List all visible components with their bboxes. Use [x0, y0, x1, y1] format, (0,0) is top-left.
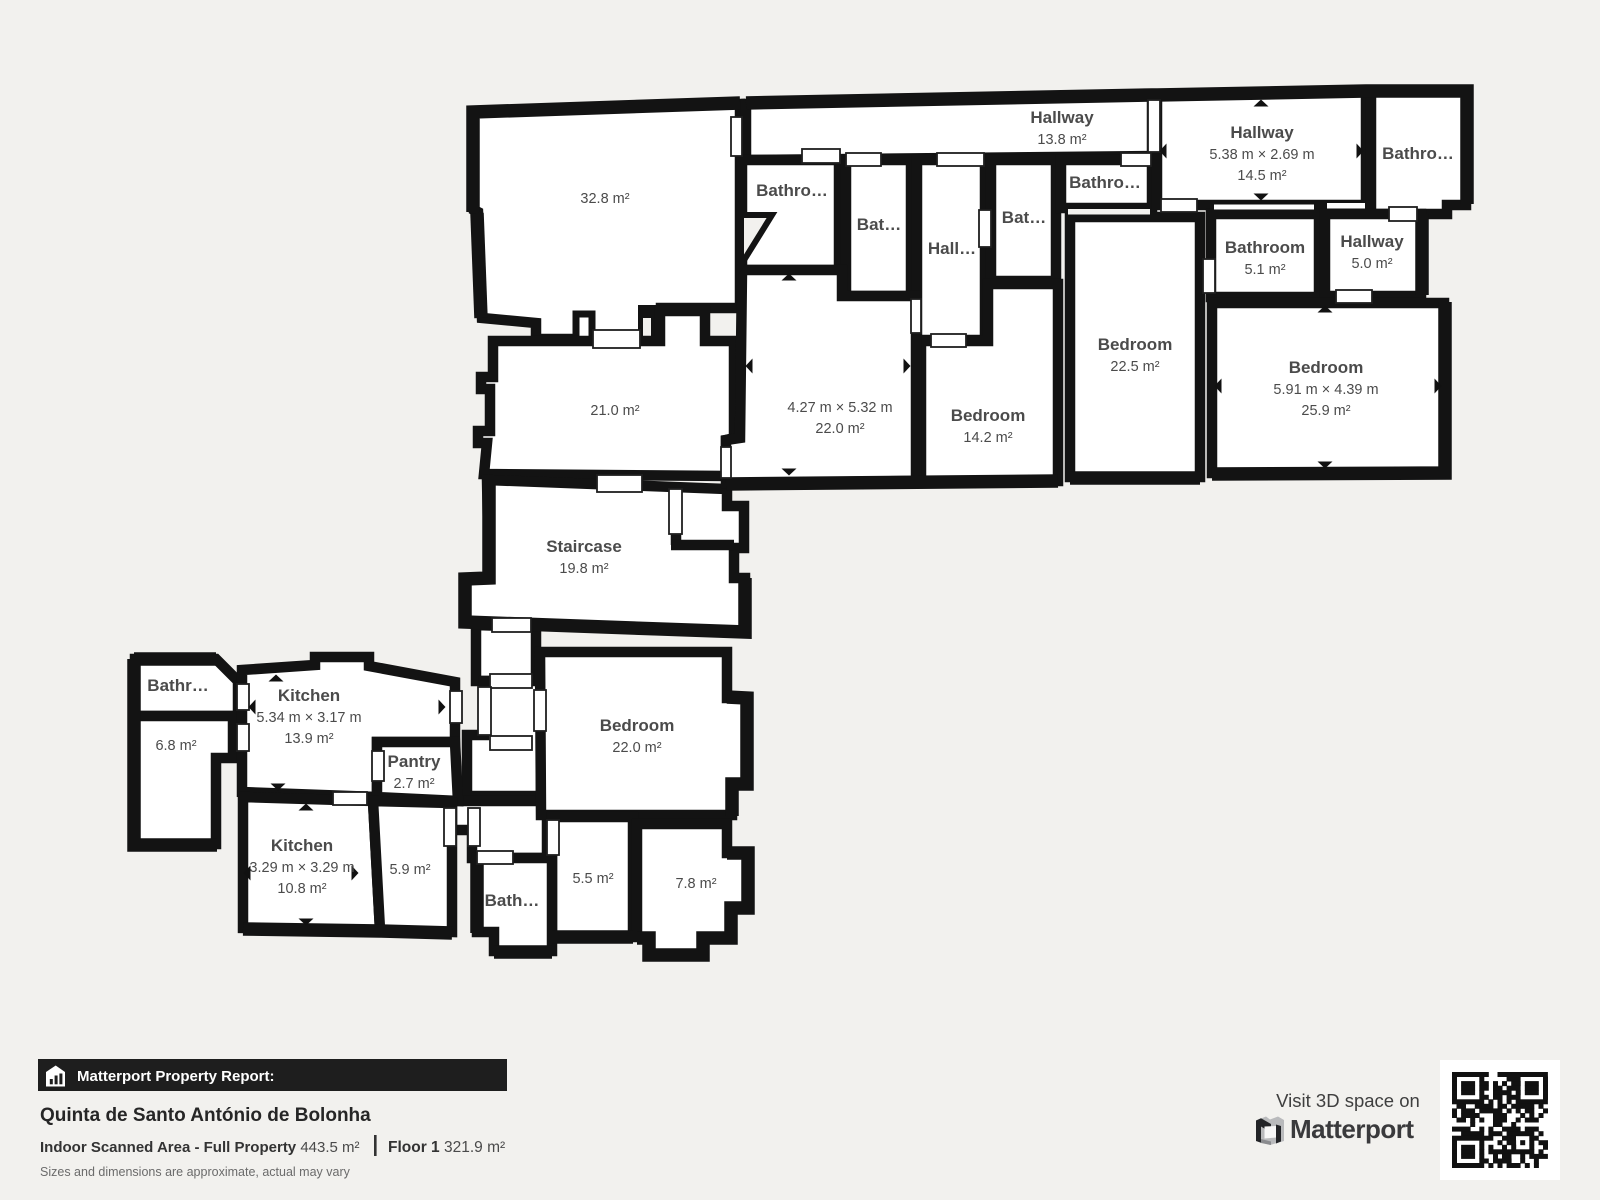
svg-text:Bedroom: Bedroom	[600, 716, 675, 735]
svg-text:5.5 m²: 5.5 m²	[572, 871, 613, 887]
svg-text:5.0 m²: 5.0 m²	[1351, 256, 1392, 272]
svg-text:13.8 m²: 13.8 m²	[1037, 132, 1086, 148]
svg-text:13.9 m²: 13.9 m²	[284, 731, 333, 747]
svg-text:22.5 m²: 22.5 m²	[1110, 359, 1159, 375]
svg-text:Hallway: Hallway	[1030, 108, 1094, 127]
svg-text:Hall…: Hall…	[928, 239, 976, 258]
svg-text:Floor 1 321.9 m²: Floor 1 321.9 m²	[388, 1139, 505, 1156]
svg-text:Bathro…: Bathro…	[1382, 144, 1454, 163]
svg-text:Bat…: Bat…	[857, 215, 901, 234]
svg-text:Pantry: Pantry	[388, 752, 441, 771]
svg-text:Visit 3D space on: Visit 3D space on	[1276, 1090, 1420, 1111]
svg-text:10.8 m²: 10.8 m²	[277, 881, 326, 897]
svg-text:Bat…: Bat…	[1002, 208, 1046, 227]
svg-text:5.91 m × 4.39 m: 5.91 m × 4.39 m	[1273, 382, 1378, 398]
svg-text:32.8 m²: 32.8 m²	[580, 191, 629, 207]
svg-text:22.0 m²: 22.0 m²	[815, 421, 864, 437]
svg-text:Bathroom: Bathroom	[1225, 238, 1305, 257]
svg-text:Bedroom: Bedroom	[1289, 358, 1364, 377]
svg-text:Sizes and dimensions are appro: Sizes and dimensions are approximate, ac…	[40, 1165, 351, 1179]
svg-text:2.7 m²: 2.7 m²	[393, 776, 434, 792]
svg-text:Kitchen: Kitchen	[271, 836, 333, 855]
svg-text:7.8 m²: 7.8 m²	[675, 876, 716, 892]
svg-text:3.29 m × 3.29 m: 3.29 m × 3.29 m	[249, 860, 354, 876]
svg-text:22.0 m²: 22.0 m²	[612, 740, 661, 756]
svg-text:Hallway: Hallway	[1230, 123, 1294, 142]
svg-text:5.9 m²: 5.9 m²	[389, 862, 430, 878]
svg-text:6.8 m²: 6.8 m²	[155, 738, 196, 754]
svg-text:Bathro…: Bathro…	[756, 181, 828, 200]
svg-text:Bath…: Bath…	[485, 891, 540, 910]
svg-text:Kitchen: Kitchen	[278, 686, 340, 705]
svg-text:25.9 m²: 25.9 m²	[1301, 403, 1350, 419]
svg-text:14.2 m²: 14.2 m²	[963, 430, 1012, 446]
svg-text:Hallway: Hallway	[1340, 232, 1404, 251]
svg-text:Staircase: Staircase	[546, 537, 622, 556]
svg-text:21.0 m²: 21.0 m²	[590, 403, 639, 419]
svg-text:19.8 m²: 19.8 m²	[559, 561, 608, 577]
svg-text:Indoor Scanned Area - Full Pro: Indoor Scanned Area - Full Property 443.…	[40, 1139, 360, 1156]
svg-text:5.38 m × 2.69 m: 5.38 m × 2.69 m	[1209, 147, 1314, 163]
svg-text:Bathro…: Bathro…	[1069, 173, 1141, 192]
svg-text:Quinta de Santo António de Bol: Quinta de Santo António de Bolonha	[40, 1105, 371, 1126]
svg-text:Matterport Property Report:: Matterport Property Report:	[77, 1068, 275, 1085]
svg-text:Bedroom: Bedroom	[951, 406, 1026, 425]
svg-text:14.5 m²: 14.5 m²	[1237, 168, 1286, 184]
svg-text:4.27 m × 5.32 m: 4.27 m × 5.32 m	[787, 400, 892, 416]
svg-text:5.1 m²: 5.1 m²	[1244, 262, 1285, 278]
svg-text:Matterport: Matterport	[1290, 1114, 1414, 1144]
svg-text:Bedroom: Bedroom	[1098, 335, 1173, 354]
svg-text:5.34 m × 3.17 m: 5.34 m × 3.17 m	[256, 710, 361, 726]
svg-text:Bathr…: Bathr…	[147, 676, 208, 695]
